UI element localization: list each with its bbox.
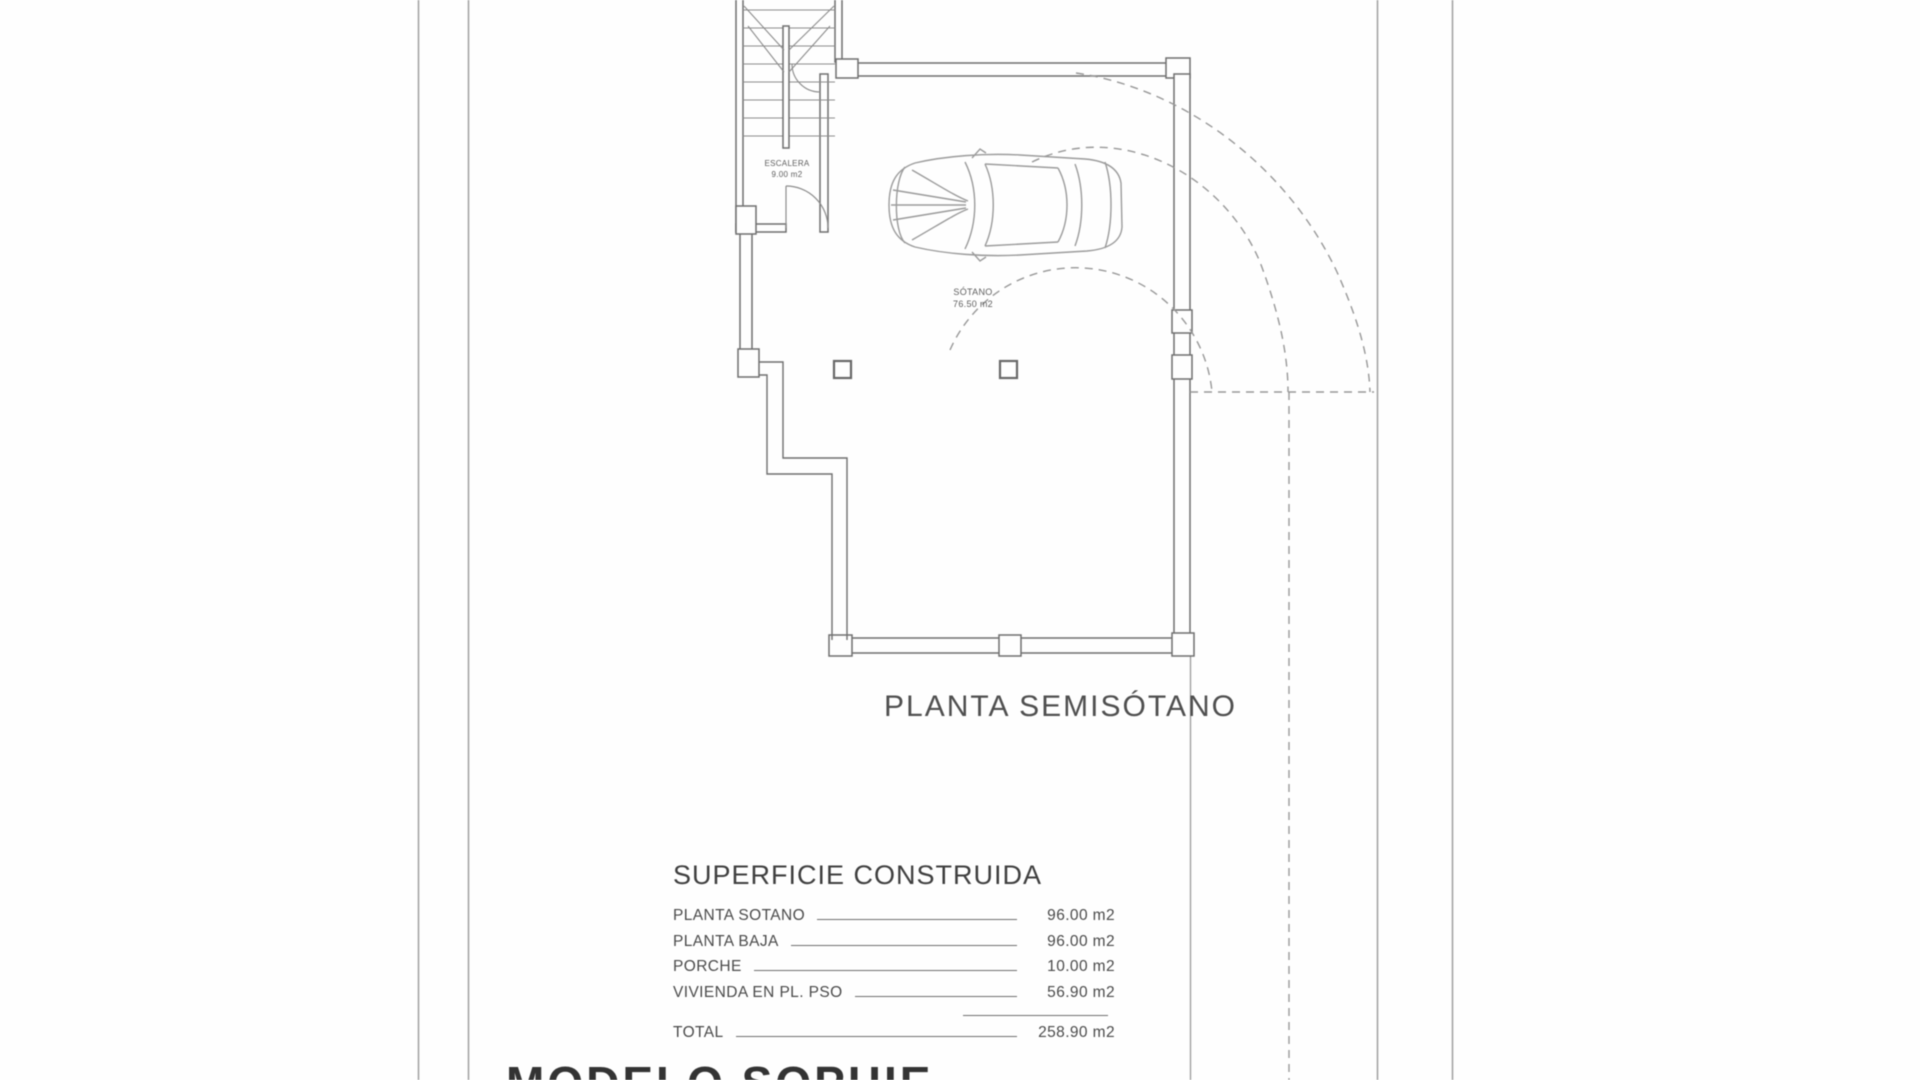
car-mirror-top xyxy=(972,149,986,158)
stair-right-wall-upper xyxy=(835,0,842,62)
row-value: 96.00 m2 xyxy=(1027,907,1115,925)
left-wall-pilaster-upper xyxy=(736,206,756,234)
car-hood-line-top xyxy=(912,170,968,201)
model-title: MODELO SOPHIE xyxy=(506,1059,933,1080)
car-top-view xyxy=(889,149,1122,261)
row-value: 56.90 m2 xyxy=(1027,984,1115,1002)
leader-line xyxy=(754,970,1017,971)
row-value: 10.00 m2 xyxy=(1027,958,1115,976)
stair-room-area: 9.00 m2 xyxy=(752,169,822,180)
basement-walls xyxy=(736,58,1194,656)
basement-room-label: SÓTANO 76.50 m2 xyxy=(937,286,1009,310)
row-label: PORCHE xyxy=(673,958,742,976)
row-value: 96.00 m2 xyxy=(1027,933,1115,951)
car-roof-edge-top xyxy=(985,164,1058,168)
row-label: PLANTA BAJA xyxy=(673,933,779,951)
stair-room-name: ESCALERA xyxy=(752,158,822,169)
column-square-right xyxy=(1000,361,1017,378)
car-hood-line-bottom xyxy=(912,209,968,240)
surface-table: SUPERFICIE CONSTRUIDA PLANTA SOTANO 96.0… xyxy=(673,860,1115,1049)
row-label: VIVIENDA EN PL. PSO xyxy=(673,984,843,1002)
stair-room-label: ESCALERA 9.00 m2 xyxy=(752,158,822,180)
car-mirror-bottom xyxy=(972,252,986,261)
bottom-right-column xyxy=(1172,633,1194,656)
staircase xyxy=(736,0,842,232)
leader-line xyxy=(817,919,1017,920)
table-row: PORCHE 10.00 m2 xyxy=(673,958,1115,976)
car-windshield-inner-arc xyxy=(985,164,993,246)
garage-top-left-column xyxy=(836,59,858,78)
stair-right-wall-lower xyxy=(820,74,828,232)
garage-top-wall xyxy=(842,63,1174,76)
car-hood-line-mid3 xyxy=(893,208,966,220)
car-hood-line-mid1 xyxy=(893,190,966,202)
floor-plan-page: ESCALERA 9.00 m2 SÓTANO 76.50 m2 PLANTA … xyxy=(0,0,1920,1080)
table-total-row: TOTAL 258.90 m2 xyxy=(673,1024,1115,1042)
total-label: TOTAL xyxy=(673,1024,724,1042)
turning-arc-middle xyxy=(1032,147,1288,392)
floor-title: PLANTA SEMISÓTANO xyxy=(884,690,1304,724)
garage-left-wall xyxy=(740,230,752,352)
left-wall-pilaster-lower xyxy=(738,349,759,377)
car-windshield-arc xyxy=(965,162,975,249)
stair-center-rail xyxy=(783,26,789,148)
bottom-mid-column xyxy=(999,635,1021,656)
leader-line xyxy=(736,1036,1017,1037)
table-row: PLANTA BAJA 96.00 m2 xyxy=(673,933,1115,951)
surface-table-heading: SUPERFICIE CONSTRUIDA xyxy=(673,860,1115,891)
basement-room-area: 76.50 m2 xyxy=(937,298,1009,310)
stair-landing-door-arc xyxy=(792,64,820,92)
stair-left-wall xyxy=(736,0,743,232)
car-rear-window-arc xyxy=(1058,168,1067,242)
total-value: 258.90 m2 xyxy=(1027,1024,1115,1042)
car-roof-edge-bottom xyxy=(985,242,1058,246)
total-separator-line xyxy=(963,1015,1108,1016)
leader-line xyxy=(855,996,1017,997)
right-wall-pilaster-lower xyxy=(1172,355,1192,379)
column-square-left xyxy=(834,361,851,378)
table-row: PLANTA SOTANO 96.00 m2 xyxy=(673,907,1115,925)
left-step-jog-walls xyxy=(759,362,847,640)
turning-arc-outer xyxy=(1076,73,1370,392)
leader-line xyxy=(791,945,1017,946)
car-rear-window-inner-arc xyxy=(1075,164,1082,246)
row-label: PLANTA SOTANO xyxy=(673,907,805,925)
basement-room-name: SÓTANO xyxy=(937,286,1009,298)
car-trunk-line xyxy=(1105,162,1111,248)
table-row: VIVIENDA EN PL. PSO 56.90 m2 xyxy=(673,984,1115,1002)
right-wall-pilaster-upper xyxy=(1172,310,1192,333)
garage-columns xyxy=(834,361,1017,378)
